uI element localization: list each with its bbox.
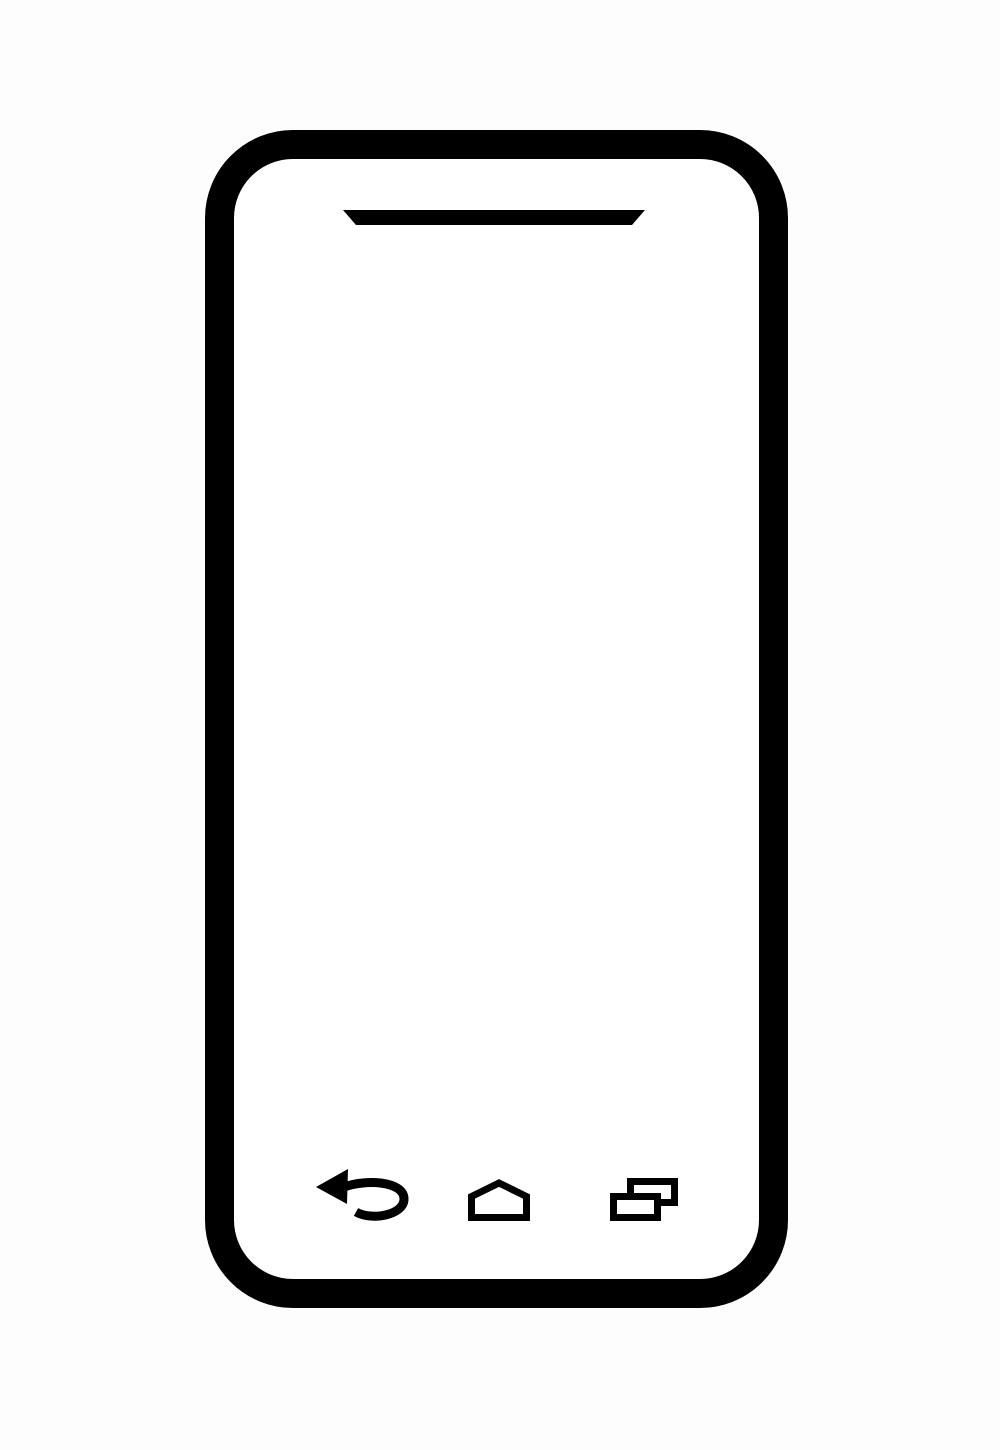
home-icon [468,1179,530,1221]
home-button[interactable] [468,1179,530,1221]
illustration-canvas [0,0,1000,1450]
phone-frame [205,130,788,1308]
earpiece-speaker [343,210,645,225]
recent-apps-button[interactable] [610,1178,678,1221]
back-button[interactable] [316,1168,404,1222]
back-arrow-icon [316,1168,404,1222]
recent-apps-icon [610,1178,678,1221]
